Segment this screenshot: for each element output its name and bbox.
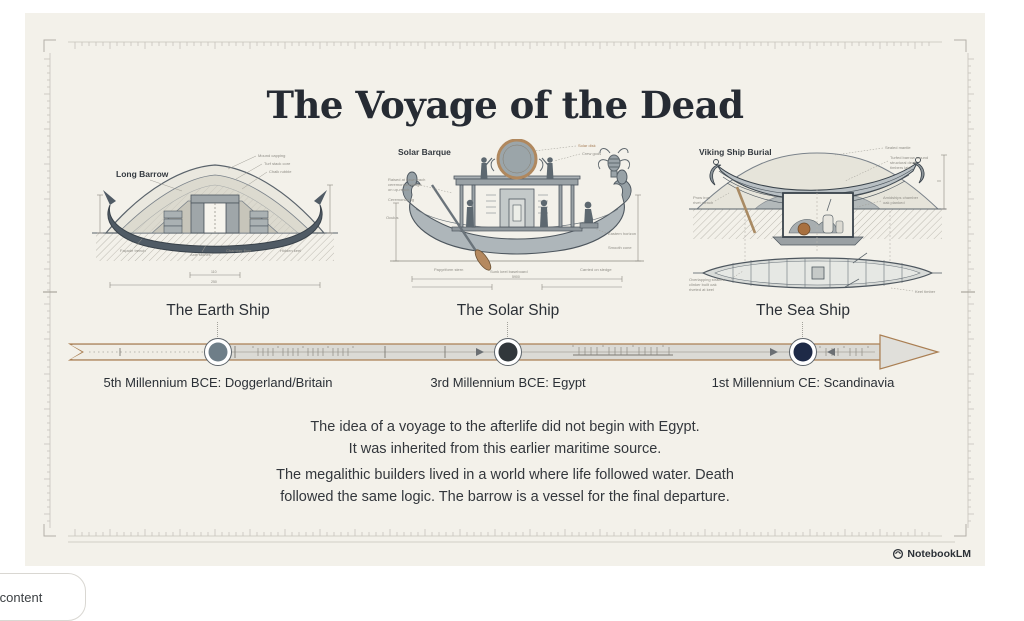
sea-ship-node [790,339,817,366]
svg-text:5900: 5900 [512,275,520,279]
content-chip[interactable]: content [0,573,86,621]
svg-text:rivet clench: rivet clench [693,200,713,205]
sea-ship-title: The Sea Ship [693,302,913,320]
notebooklm-logo-icon [892,548,904,560]
svg-text:250: 250 [211,280,217,284]
svg-text:Façade trench: Façade trench [120,248,146,253]
longship-plan [693,253,942,288]
page: { "page": { "background": "#ffffff", "ca… [0,0,1024,599]
burial-chamber [773,193,863,245]
paragraph-two: The megalithic builders lived in a world… [125,465,885,509]
solar-ship-caption: 3rd Millennium BCE: Egypt [348,375,668,390]
long-barrow-figure: 110 250 Mound capping Turf stack core Ch… [90,143,340,298]
svg-text:110: 110 [211,270,217,274]
solar-barque-figure: 5900 Solar disk Crew gods Raised at dawn… [382,139,652,299]
paragraph-one: The idea of a voyage to the afterlife di… [125,417,885,461]
svg-text:Sunk keel baseboard: Sunk keel baseboard [490,269,528,274]
page-title: The Voyage of the Dead [25,83,985,127]
shrine [486,189,548,227]
svg-text:Eastern horizon: Eastern horizon [608,231,636,236]
svg-text:Sealed mantle: Sealed mantle [885,145,911,150]
solar-disk [498,140,536,178]
earth-ship-node [205,339,232,366]
notebooklm-brand: NotebookLM [892,548,971,560]
solar-ship-title: The Solar Ship [398,302,618,320]
svg-text:Crew gods: Crew gods [582,151,601,156]
svg-text:Keel timber: Keel timber [915,289,936,294]
svg-text:Solar disk: Solar disk [578,143,596,148]
svg-text:riveted at keel: riveted at keel [689,287,714,292]
svg-text:Carried on sledge: Carried on sledge [580,267,612,272]
svg-text:oak planked: oak planked [883,200,905,205]
svg-text:Chamber floor: Chamber floor [226,248,252,253]
solar-ship-node [495,339,522,366]
dimension-lines [937,155,947,209]
svg-text:Axle stones: Axle stones [190,252,211,257]
timeline-arrowhead [880,335,938,369]
long-barrow-label: Long Barrow [116,169,169,179]
earth-ship-title: The Earth Ship [108,302,328,320]
viking-ship-figure: Sealed mantle Turfed barrow mound struct… [685,141,950,301]
svg-text:Smooth cone: Smooth cone [608,245,632,250]
infographic-canvas: The Voyage of the Dead [25,13,985,566]
earth-ship-caption: 5th Millennium BCE: Doggerland/Britain [58,375,378,390]
svg-text:Oculus: Oculus [386,215,398,220]
svg-text:timbers laid: timbers laid [890,165,910,170]
svg-text:Ceremonial rig: Ceremonial rig [388,197,414,202]
notebooklm-label: NotebookLM [907,548,971,560]
sea-ship-caption: 1st Millennium CE: Scandinavia [643,375,963,390]
svg-text:Mound capping: Mound capping [258,153,285,158]
svg-text:on up-reach: on up-reach [388,187,409,192]
svg-text:Hidden keel: Hidden keel [280,248,301,253]
svg-text:Turf stack core: Turf stack core [264,161,291,166]
svg-text:Papyriform stern: Papyriform stern [434,267,463,272]
svg-text:Chalk rubble: Chalk rubble [269,169,292,174]
solar-barque-label: Solar Barque [398,147,451,157]
viking-ship-label: Viking Ship Burial [699,147,772,157]
